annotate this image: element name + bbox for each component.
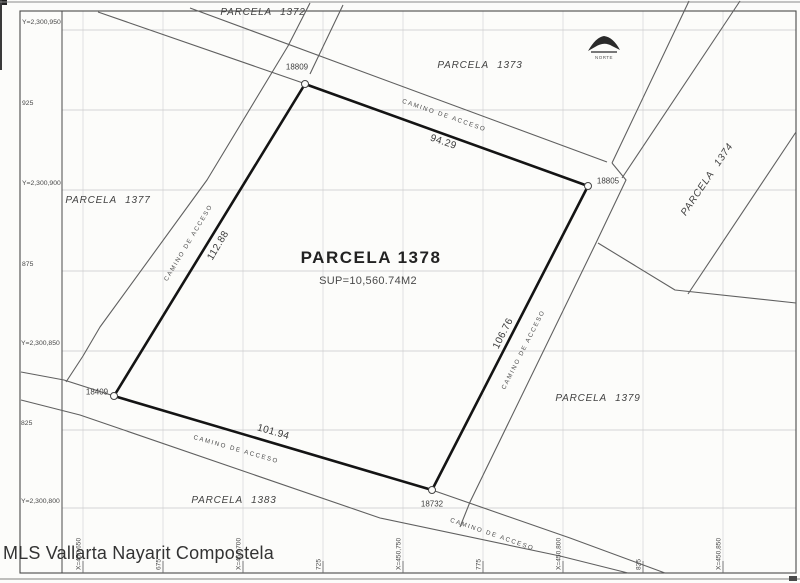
parcel-label-1383: PARCELA 1383 <box>191 496 276 507</box>
point-label-18805: 18805 <box>597 178 619 186</box>
x-axis-label: 825 <box>636 559 643 570</box>
cadastral-map-page: Y=2,300,950 925 Y=2,300,900 875 Y=2,300,… <box>0 0 800 583</box>
parcel-label-1372: PARCELA 1372 <box>220 8 305 19</box>
point-label-18732: 18732 <box>421 501 443 509</box>
y-axis-label: Y=2,300,850 <box>21 340 60 347</box>
x-axis-label: X=450,800 <box>556 538 563 570</box>
parcel-label-1379: PARCELA 1379 <box>555 394 640 405</box>
y-axis-label: 875 <box>22 261 33 268</box>
point-label-18809: 18809 <box>286 64 308 72</box>
main-parcel-area: SUP=10,560.74M2 <box>319 276 417 288</box>
parcel-label-1373: PARCELA 1373 <box>437 61 522 72</box>
north-arrow-icon <box>588 36 620 52</box>
main-parcel-title: PARCELA 1378 <box>301 249 442 267</box>
y-axis-label: 825 <box>21 420 32 427</box>
y-axis-label: Y=2,300,800 <box>21 498 60 505</box>
parcel-label-1377: PARCELA 1377 <box>65 196 150 207</box>
watermark: MLS Vallarta Nayarit Compostela <box>3 544 274 563</box>
map-linework <box>0 0 800 583</box>
x-axis-label: X=450,850 <box>716 538 723 570</box>
y-axis-label: Y=2,300,900 <box>22 180 61 187</box>
x-axis-label: 775 <box>476 559 483 570</box>
x-axis-label: 725 <box>316 559 323 570</box>
y-axis-label: 925 <box>22 100 33 107</box>
north-label: NORTE <box>595 56 613 61</box>
point-label-18409: 18409 <box>86 389 108 397</box>
x-axis-label: X=450,750 <box>396 538 403 570</box>
map-frame <box>20 11 796 573</box>
y-axis-label: Y=2,300,950 <box>22 19 61 26</box>
